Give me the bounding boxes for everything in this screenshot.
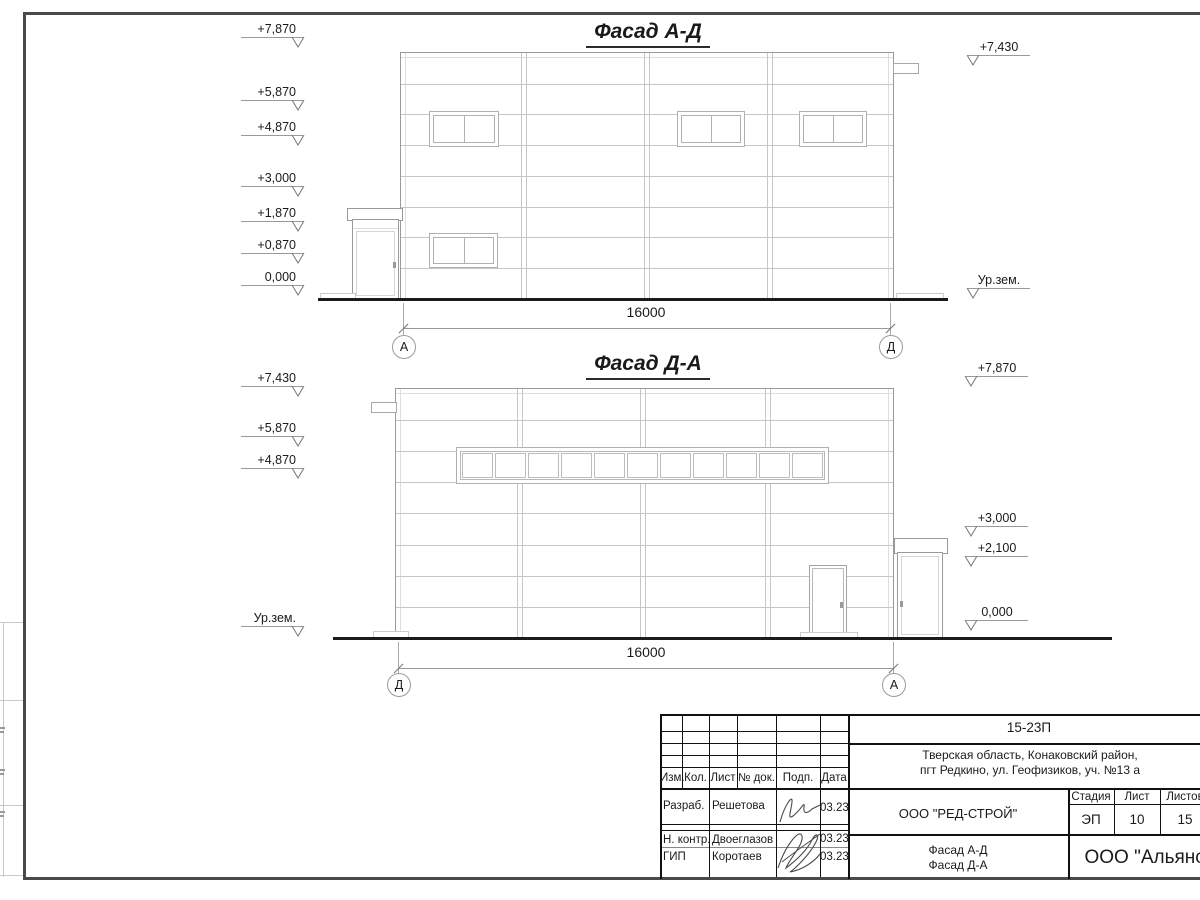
elevation-mark: +2,100 [966, 541, 1028, 557]
frame-bottom [23, 877, 1200, 880]
sheet-name-line1: Фасад А-Д [848, 843, 1068, 857]
frame-top [23, 12, 1200, 15]
sheets-label: Листов [1160, 791, 1200, 803]
elevation-value: +7,430 [968, 40, 1030, 54]
axis-bubble: А [882, 673, 906, 697]
panel-joint [640, 389, 646, 638]
elevation-mark: +7,870 [241, 22, 303, 38]
side-stamp-text-stub [0, 769, 5, 771]
panel-joint [521, 53, 527, 299]
elevation-value: +4,870 [241, 453, 303, 467]
window-pane [660, 453, 691, 478]
facade1-title: Фасад А-Д [448, 20, 848, 44]
titleblock-line [660, 714, 1200, 716]
facade1-building [400, 52, 894, 300]
dimension-line [403, 328, 890, 329]
axis-bubble: Д [387, 673, 411, 697]
address-line2: пгт Редкино, ул. Геофизиков, уч. №13 а [856, 763, 1200, 777]
person-name: Коротаев [712, 851, 762, 863]
window-pane [594, 453, 625, 478]
col-header-date: Дата [820, 772, 848, 784]
address-line1: Тверская область, Конаковский район, [856, 748, 1200, 762]
dimension-text: 16000 [546, 304, 746, 320]
roof-vent [371, 402, 397, 413]
doc-number: 15-23П [848, 720, 1200, 735]
elevation-mark: +4,870 [241, 120, 303, 136]
window [677, 111, 745, 147]
window-pane [759, 453, 790, 478]
panel-joint [767, 53, 773, 299]
elevation-arrow-icon [291, 626, 305, 637]
door-handle [900, 601, 903, 607]
elevation-mark: +5,870 [241, 85, 303, 101]
elevation-mark: +1,870 [241, 206, 303, 222]
col-header-kol: Кол. [682, 772, 709, 784]
elevation-value: Ур.зем. [968, 273, 1030, 287]
signature [777, 792, 823, 826]
elevation-mark: +7,430 [968, 40, 1030, 56]
elevation-arrow-icon [291, 285, 305, 296]
elevation-value: +7,870 [241, 22, 303, 36]
elevation-arrow-icon [291, 37, 305, 48]
stage-label: Стадия [1068, 791, 1114, 803]
elevation-arrow-icon [291, 100, 305, 111]
elevation-mark: +0,870 [241, 238, 303, 254]
window [429, 233, 498, 268]
side-stamp-text-stub [0, 815, 4, 817]
elevation-arrow-icon [291, 186, 305, 197]
titleblock-line [848, 834, 1200, 836]
axis-bubble: Д [879, 335, 903, 359]
window-mullion [711, 116, 712, 142]
elevation-arrow-icon [291, 135, 305, 146]
window-pane [495, 453, 526, 478]
side-stamp-text-stub [0, 773, 4, 775]
panel-joint [765, 389, 771, 638]
side-stamp-text-stub [0, 731, 4, 733]
elevation-arrow-icon [964, 376, 978, 387]
sheet-name-line2: Фасад Д-А [848, 858, 1068, 872]
porch [352, 219, 399, 300]
door-handle [393, 262, 396, 268]
porch-lintel-line [353, 228, 398, 229]
elevation-mark: Ур.зем. [241, 611, 303, 627]
window-pane [627, 453, 658, 478]
elevation-arrow-icon [291, 468, 305, 479]
door-handle [840, 602, 843, 608]
elevation-value: +7,430 [241, 371, 303, 385]
window-mullion [464, 116, 465, 142]
window-pane [561, 453, 592, 478]
elevation-arrow-icon [966, 288, 980, 299]
elevation-value: +3,000 [966, 511, 1028, 525]
elevation-arrow-icon [964, 620, 978, 631]
drawing-sheet: Фасад А-Д [0, 0, 1200, 900]
elevation-mark: 0,000 [241, 270, 303, 286]
titleblock-line [660, 714, 662, 879]
window [799, 111, 867, 147]
window-pane [462, 453, 493, 478]
elevation-value: +1,870 [241, 206, 303, 220]
panel-joint [517, 389, 523, 638]
window-pane [792, 453, 823, 478]
elevation-mark: +3,000 [966, 511, 1028, 527]
window-pane [528, 453, 559, 478]
porch-door [901, 556, 939, 635]
elevation-mark: +7,870 [966, 361, 1028, 377]
roof-vent [893, 63, 919, 74]
elevation-arrow-icon [291, 221, 305, 232]
col-header-sign: Подп. [776, 772, 820, 784]
elevation-value: +5,870 [241, 85, 303, 99]
side-stamp-text-stub [0, 727, 5, 729]
elevation-value: +3,000 [241, 171, 303, 185]
role-label: Н. контр. [663, 834, 710, 846]
col-header-doc: № док. [737, 772, 776, 784]
elevation-value: 0,000 [966, 605, 1028, 619]
sheet-value: 10 [1114, 812, 1160, 827]
window-mullion [464, 238, 465, 263]
facade2-building [395, 388, 894, 639]
elevation-arrow-icon [964, 526, 978, 537]
window-pane [693, 453, 724, 478]
dimension-line [398, 668, 893, 669]
sheets-value: 15 [1160, 812, 1200, 827]
elevation-value: +0,870 [241, 238, 303, 252]
elevation-arrow-icon [966, 55, 980, 66]
elevation-mark: +5,870 [241, 421, 303, 437]
col-header-list: Лист [709, 772, 737, 784]
titleblock-line [709, 714, 710, 877]
elevation-value: +7,870 [966, 361, 1028, 375]
titleblock-line [660, 788, 1200, 790]
ribbon-window [456, 447, 829, 484]
elevation-value: +5,870 [241, 421, 303, 435]
ground-line [318, 298, 948, 301]
ground-line [333, 637, 1112, 640]
company-name: ООО "Альянс" [1068, 847, 1200, 869]
titleblock-line [1068, 804, 1200, 805]
axis-bubble: А [392, 335, 416, 359]
elevation-arrow-icon [291, 253, 305, 264]
elevation-mark: +7,430 [241, 371, 303, 387]
titleblock-line [848, 743, 1200, 745]
elevation-mark: Ур.зем. [968, 273, 1030, 289]
dimension-text: 16000 [546, 644, 746, 660]
elevation-mark: +4,870 [241, 453, 303, 469]
person-name: Решетова [712, 800, 765, 812]
porch [897, 552, 943, 639]
window [429, 111, 499, 147]
entrance-door [809, 565, 847, 636]
elevation-mark: +3,000 [241, 171, 303, 187]
elevation-value: +4,870 [241, 120, 303, 134]
col-header-izm: Изм. [660, 772, 682, 784]
door-leaf [812, 568, 844, 633]
panel-joint [644, 53, 650, 299]
stage-value: ЭП [1068, 812, 1114, 827]
role-label: ГИП [663, 851, 686, 863]
role-label: Разраб. [663, 800, 704, 812]
designer-org: ООО "РЕД-СТРОЙ" [848, 806, 1068, 821]
signature [772, 824, 828, 878]
porch-door [356, 231, 395, 296]
elevation-value: +2,100 [966, 541, 1028, 555]
sheet-label: Лист [1114, 791, 1160, 803]
frame-left [23, 12, 26, 880]
extension-line [403, 303, 404, 335]
elevation-arrow-icon [291, 436, 305, 447]
window-pane [726, 453, 757, 478]
elevation-value: 0,000 [241, 270, 303, 284]
elevation-mark: 0,000 [966, 605, 1028, 621]
elevation-arrow-icon [291, 386, 305, 397]
side-stamp-text-stub [0, 811, 5, 813]
elevation-value: Ур.зем. [241, 611, 303, 625]
extension-line [890, 303, 891, 335]
person-name: Двоеглазов [712, 834, 773, 846]
window-mullion [833, 116, 834, 142]
facade2-title: Фасад Д-А [448, 352, 848, 376]
side-stamp-line [3, 622, 4, 877]
date-value: 03.23 [820, 802, 848, 814]
elevation-arrow-icon [964, 556, 978, 567]
